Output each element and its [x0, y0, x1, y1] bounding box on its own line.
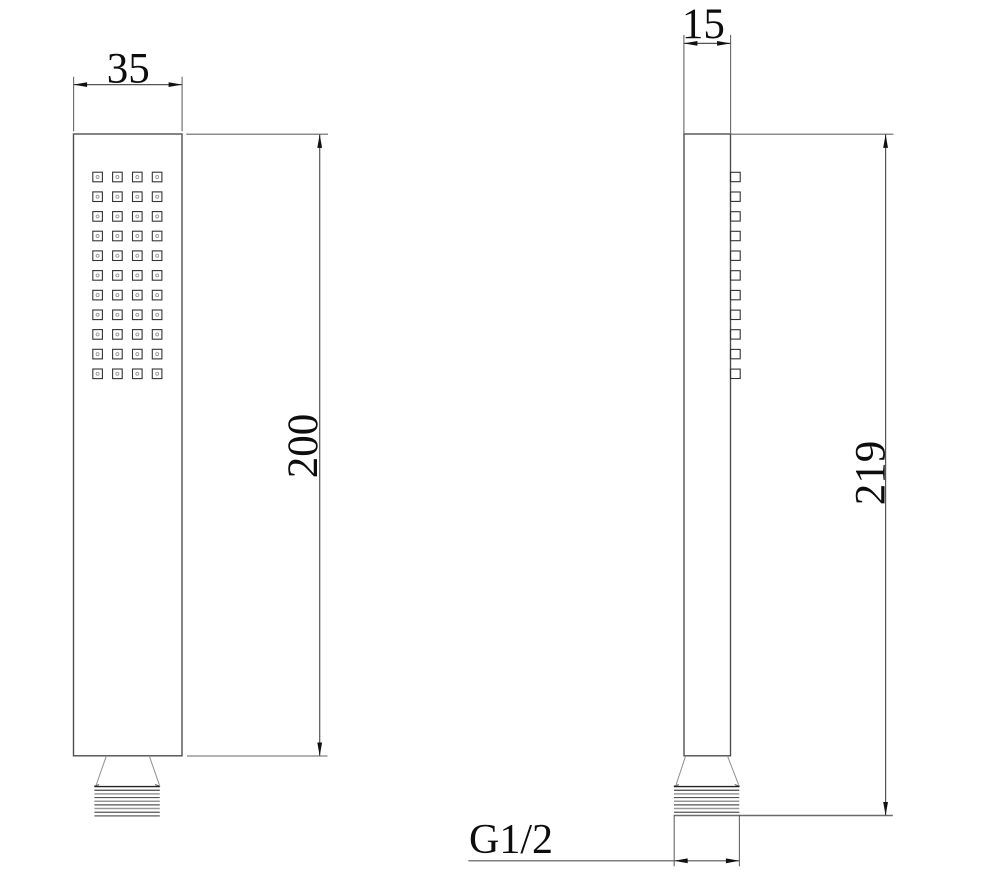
svg-text:35: 35 [107, 45, 150, 92]
svg-text:G1/2: G1/2 [469, 817, 553, 863]
svg-text:200: 200 [280, 414, 327, 479]
svg-text:15: 15 [682, 1, 725, 48]
svg-text:219: 219 [847, 441, 894, 506]
